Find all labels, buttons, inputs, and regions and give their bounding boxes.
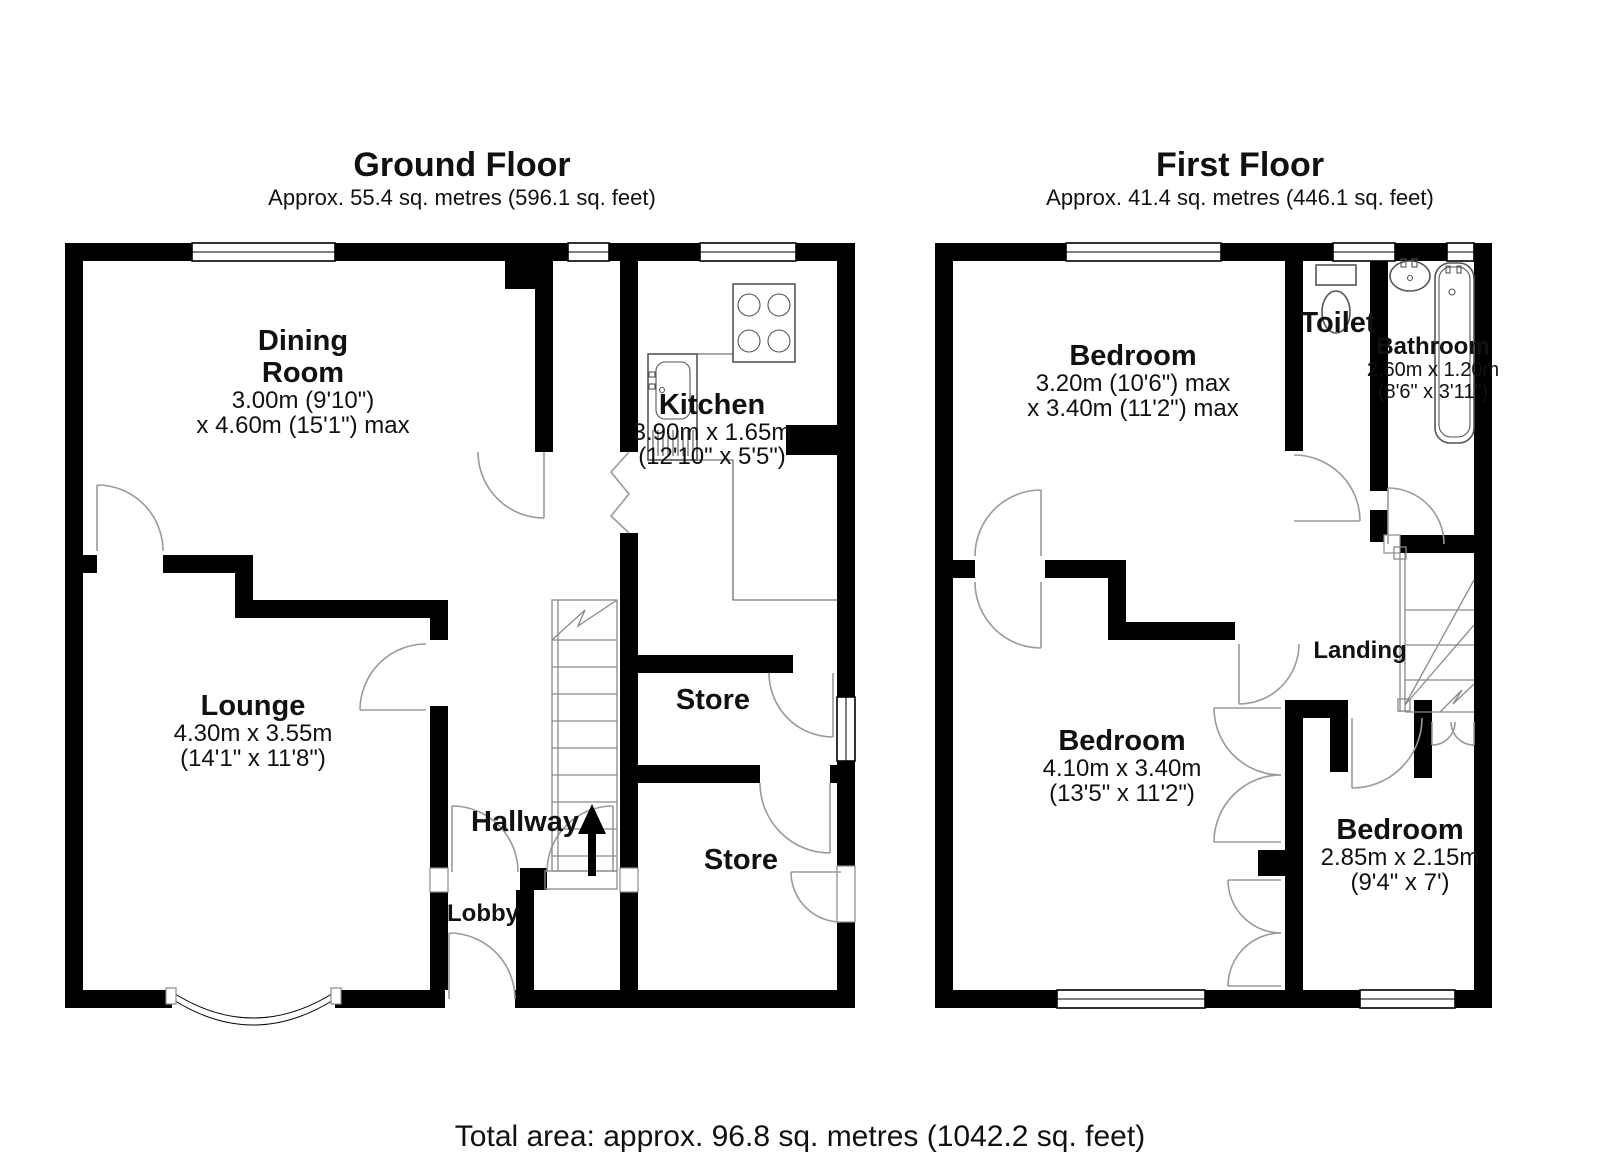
ground-floor-subtitle: Approx. 55.4 sq. metres (596.1 sq. feet) bbox=[268, 185, 656, 210]
svg-text:Dining: Dining bbox=[258, 325, 348, 357]
window bbox=[192, 243, 335, 261]
first-floor-title: First Floor bbox=[1156, 146, 1324, 184]
window bbox=[568, 243, 609, 261]
room-label-toilet: Toilet bbox=[1300, 307, 1376, 339]
room-label-lounge: Lounge 4.30m x 3.55m (14'1" x 11'8") bbox=[174, 690, 333, 772]
floorplan-drawing: Ground Floor Approx. 55.4 sq. metres (59… bbox=[0, 0, 1600, 1163]
window bbox=[700, 243, 796, 261]
wardrobe-door-arc bbox=[1214, 708, 1281, 775]
door-arc bbox=[975, 582, 1041, 648]
svg-text:(14'1" x 11'8"): (14'1" x 11'8") bbox=[180, 745, 326, 772]
door-arc bbox=[360, 644, 426, 710]
svg-text:Bathroom: Bathroom bbox=[1376, 333, 1489, 360]
door-arc bbox=[769, 673, 833, 737]
bay-window bbox=[166, 988, 341, 1025]
first-room-labels: Bedroom 3.20m (10'6") max x 3.40m (11'2"… bbox=[1027, 307, 1499, 896]
wardrobe-door-arc bbox=[1228, 880, 1281, 933]
svg-text:2.85m x 2.15m: 2.85m x 2.15m bbox=[1321, 844, 1480, 871]
window bbox=[1333, 243, 1395, 261]
room-label-bedroom1: Bedroom 3.20m (10'6") max x 3.40m (11'2"… bbox=[1027, 340, 1238, 422]
window bbox=[1057, 990, 1205, 1008]
room-label-bedroom2: Bedroom 4.10m x 3.40m (13'5" x 11'2") bbox=[1043, 725, 1202, 807]
room-label-bathroom: Bathroom 2.60m x 1.20m (8'6" x 3'11") bbox=[1367, 333, 1499, 403]
svg-text:3.90m x 1.65m: 3.90m x 1.65m bbox=[633, 419, 792, 446]
svg-text:Room: Room bbox=[262, 357, 344, 389]
stairs-up-arrow-icon bbox=[578, 804, 606, 876]
folding-door bbox=[611, 452, 629, 533]
door-arc bbox=[449, 933, 515, 999]
door-opening bbox=[430, 868, 448, 892]
room-label-lobby: Lobby bbox=[447, 900, 520, 927]
ground-room-labels: Dining Room 3.00m (9'10") x 4.60m (15'1"… bbox=[174, 325, 792, 927]
door-arc bbox=[97, 485, 163, 551]
svg-text:(9'4" x 7'): (9'4" x 7') bbox=[1350, 869, 1449, 896]
hob-icon bbox=[733, 284, 795, 362]
door-arc bbox=[975, 490, 1041, 556]
window bbox=[837, 697, 855, 761]
door-arc bbox=[1294, 455, 1360, 521]
svg-text:(8'6" x 3'11"): (8'6" x 3'11") bbox=[1378, 381, 1488, 403]
svg-text:Bedroom: Bedroom bbox=[1069, 340, 1196, 372]
ground-floor-title: Ground Floor bbox=[353, 146, 570, 184]
svg-text:Bedroom: Bedroom bbox=[1058, 725, 1185, 757]
total-area-text: Total area: approx. 96.8 sq. metres (104… bbox=[455, 1120, 1145, 1153]
first-floor-subtitle: Approx. 41.4 sq. metres (446.1 sq. feet) bbox=[1046, 185, 1434, 210]
svg-text:Bedroom: Bedroom bbox=[1336, 814, 1463, 846]
room-label-landing: Landing bbox=[1313, 637, 1406, 664]
window bbox=[1447, 243, 1474, 261]
room-label-hallway: Hallway bbox=[471, 806, 579, 838]
svg-text:x 3.40m (11'2") max: x 3.40m (11'2") max bbox=[1027, 395, 1238, 422]
door-opening bbox=[620, 868, 638, 892]
door-arc bbox=[1239, 644, 1299, 704]
svg-text:3.20m (10'6") max: 3.20m (10'6") max bbox=[1036, 370, 1231, 397]
svg-text:(12'10" x 5'5"): (12'10" x 5'5") bbox=[638, 443, 786, 470]
window bbox=[1360, 990, 1455, 1008]
first-floor-plan: First Floor Approx. 41.4 sq. metres (446… bbox=[935, 146, 1499, 1008]
svg-text:x 4.60m (15'1") max: x 4.60m (15'1") max bbox=[196, 412, 409, 439]
window bbox=[1066, 243, 1221, 261]
door-arc bbox=[478, 452, 544, 518]
room-label-bedroom3: Bedroom 2.85m x 2.15m (9'4" x 7') bbox=[1321, 814, 1480, 896]
svg-text:Kitchen: Kitchen bbox=[659, 389, 765, 421]
room-label-store-upper: Store bbox=[676, 684, 750, 716]
room-label-store-lower: Store bbox=[704, 844, 778, 876]
staircase-first bbox=[1394, 547, 1474, 712]
door-arc bbox=[791, 872, 841, 922]
svg-text:4.10m x 3.40m: 4.10m x 3.40m bbox=[1043, 755, 1202, 782]
wardrobe-door-arc bbox=[1228, 933, 1281, 986]
ground-floor-plan: Ground Floor Approx. 55.4 sq. metres (59… bbox=[65, 146, 855, 1025]
svg-text:2.60m x 1.20m: 2.60m x 1.20m bbox=[1367, 359, 1499, 381]
svg-text:Lounge: Lounge bbox=[201, 690, 306, 722]
room-label-dining: Dining Room 3.00m (9'10") x 4.60m (15'1"… bbox=[196, 325, 409, 439]
basin-icon bbox=[1390, 259, 1430, 291]
svg-text:(13'5" x 11'2"): (13'5" x 11'2") bbox=[1049, 780, 1195, 807]
door-opening bbox=[1384, 535, 1400, 553]
wardrobe-door-arc bbox=[1214, 775, 1281, 842]
svg-text:3.00m (9'10"): 3.00m (9'10") bbox=[232, 387, 375, 414]
floorplan-page: { "ground_floor": { "title": "Ground Flo… bbox=[0, 0, 1600, 1163]
svg-text:4.30m x 3.55m: 4.30m x 3.55m bbox=[174, 720, 333, 747]
door-opening bbox=[837, 866, 855, 922]
door-arc bbox=[1352, 718, 1422, 788]
door-arc bbox=[760, 783, 830, 853]
staircase-ground bbox=[545, 600, 617, 889]
